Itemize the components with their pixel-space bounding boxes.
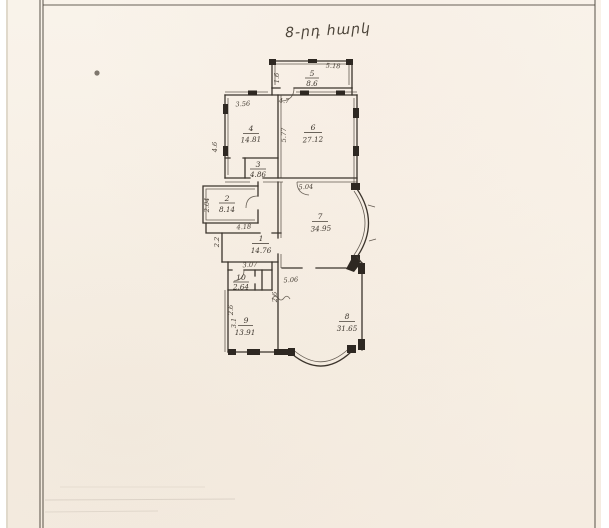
room-9-area: 13.91 (235, 328, 256, 337)
dim-3-07: 3.07 (242, 261, 258, 270)
bay-mullion-ticks (368, 205, 376, 241)
wall-pier (223, 104, 228, 114)
room-4-number: 4 (248, 124, 254, 133)
wall-pier (248, 91, 257, 96)
room-10-label: 10 2.64 (232, 273, 249, 292)
room-1-label: 1 14.76 (251, 234, 272, 255)
wall-pier (288, 348, 295, 356)
wall-pier (223, 146, 228, 156)
wall-pier (358, 339, 365, 350)
scan-streak (45, 511, 158, 512)
room-4-area: 14.81 (240, 134, 261, 144)
ink-dot (94, 70, 99, 75)
wall-pier (274, 349, 289, 355)
wall-pier (347, 345, 356, 353)
dim-3-56: 3.56 (235, 100, 250, 109)
dim-2-6-closet: 2.6 (271, 292, 279, 304)
dim-5-06: 5.06 (283, 276, 298, 285)
room-8-area: 31.65 (337, 324, 358, 333)
room-6-area: 27.12 (301, 134, 323, 144)
room-10-area: 2.64 (232, 283, 249, 292)
dim-4-7: 4.7 (278, 97, 291, 105)
room-3-label: 3 4.86 (249, 160, 266, 179)
room-8-number: 8 (345, 312, 350, 321)
wall-pier (351, 183, 360, 190)
dim-2-6-room9: 2.6 (227, 305, 235, 317)
dim-1-6: 1.6 (273, 73, 281, 84)
wall-pier (353, 108, 359, 118)
wall-pier (358, 263, 365, 274)
wall-pier (346, 59, 353, 65)
room-1-area: 14.76 (251, 246, 272, 255)
scan-streak (45, 499, 235, 500)
room-3-area: 4.86 (249, 170, 266, 179)
wall-pier (269, 59, 276, 65)
room-8-label: 8 31.65 (337, 312, 358, 333)
scanned-page: 8-րդ հարկ (0, 0, 609, 528)
dim-4-18: 4.18 (235, 223, 251, 232)
wall-pier (308, 59, 317, 63)
room-7-number: 7 (318, 212, 323, 221)
wall-pier (336, 91, 345, 96)
dim-5-18: 5.18 (326, 62, 341, 71)
dim-4-6: 4.6 (211, 142, 219, 154)
room-2-label: 2 8.14 (219, 194, 235, 214)
room-10-number: 10 (236, 273, 246, 282)
dim-3-1: 3.1 (230, 318, 238, 329)
door-swing (246, 196, 258, 208)
wall-pier (228, 349, 236, 355)
dim-5-04: 5.04 (298, 183, 313, 192)
wall-pier (353, 146, 359, 156)
room-6-number: 6 (311, 123, 316, 132)
dim-2-04: 2.04 (203, 198, 211, 214)
room-4-label: 4 14.81 (240, 124, 261, 145)
room-5-label: 5 8.6 (305, 69, 319, 88)
dim-2-2: 2.2 (213, 237, 221, 249)
floor-plan-drawing: 5 8.6 4 14.81 6 27.12 3 4.86 2 (0, 0, 609, 528)
wall-pier (247, 349, 260, 355)
room-9-number: 9 (244, 316, 249, 325)
room-5-area: 8.6 (306, 79, 318, 88)
dim-5-77: 5.77 (280, 127, 288, 142)
room-2-number: 2 (224, 194, 230, 203)
room-1-number: 1 (259, 234, 264, 243)
wall-pier (300, 91, 309, 96)
room-3-number: 3 (256, 160, 261, 169)
room-6-label: 6 27.12 (301, 123, 323, 145)
room-2-area: 8.14 (219, 205, 235, 214)
room-7-area: 34.95 (310, 223, 331, 233)
room-7-label: 7 34.95 (310, 212, 331, 234)
room-5-number: 5 (310, 69, 315, 78)
